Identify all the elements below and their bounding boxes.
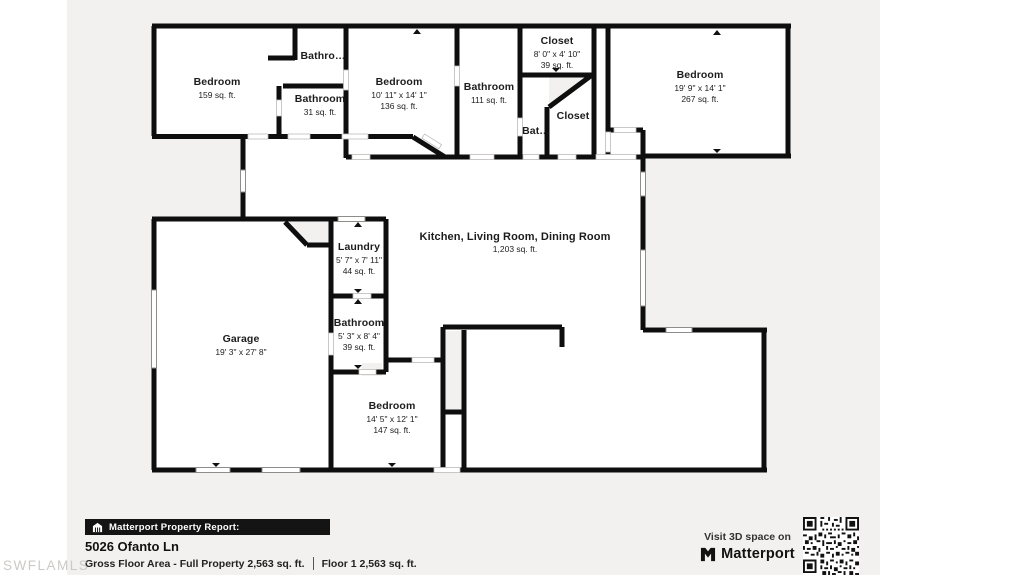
room-name: Bathroom [295,93,345,107]
room-area: 44 sq. ft. [336,266,382,277]
room-label-bathroom-truncated: Bat… [522,125,550,139]
room-area: 39 sq. ft. [334,342,384,353]
room-label-closet-2: Closet [557,110,590,124]
room-area: 39 sq. ft. [534,60,581,71]
room-name: Bathroom [464,81,514,95]
room-label-closet-39: Closet 8' 0" x 4' 10" 39 sq. ft. [534,35,581,71]
room-label-bedroom-1: Bedroom 159 sq. ft. [194,76,241,101]
room-area: 147 sq. ft. [366,425,417,436]
room-name: Bedroom [371,76,426,90]
gross-floor-area: Gross Floor Area - Full Property 2,563 s… [85,558,305,570]
report-title: Matterport Property Report: [109,522,240,533]
matterport-logo-icon [700,547,716,562]
room-area: 159 sq. ft. [194,90,241,101]
room-area: 1,203 sq. ft. [420,244,611,255]
room-label-bedroom-147: Bedroom 14' 5" x 12' 1" 147 sq. ft. [366,400,417,436]
room-label-bedroom-136: Bedroom 10' 11" x 14' 1" 136 sq. ft. [371,76,426,112]
room-label-bathroom-small: Bathro… [300,50,345,64]
floor1-area: Floor 1 2,563 sq. ft. [322,558,417,570]
room-area: 136 sq. ft. [371,101,426,112]
room-name: Bedroom [194,76,241,90]
floor-area-stats: Gross Floor Area - Full Property 2,563 s… [85,557,417,570]
room-label-kitchen-living-dining: Kitchen, Living Room, Dining Room 1,203 … [420,230,611,255]
room-name: Bat… [522,125,550,139]
mls-watermark: SWFLAMLS [3,558,89,573]
room-name: Kitchen, Living Room, Dining Room [420,230,611,244]
room-label-bathroom-39: Bathroom 5' 3" x 8' 4" 39 sq. ft. [334,317,384,353]
qr-code [803,517,859,575]
room-area: 267 sq. ft. [674,94,725,105]
room-name: Bedroom [366,400,417,414]
room-name: Bedroom [674,69,725,83]
room-dims: 5' 3" x 8' 4" [334,331,384,342]
room-label-bathroom-31: Bathroom 31 sq. ft. [295,93,345,118]
room-area: 111 sq. ft. [464,95,514,106]
room-label-bedroom-267: Bedroom 19' 9" x 14' 1" 267 sq. ft. [674,69,725,105]
room-name: Bathro… [300,50,345,64]
room-label-garage: Garage 19' 3" x 27' 8" [215,333,266,358]
room-label-laundry: Laundry 5' 7" x 7' 11" 44 sq. ft. [336,241,382,277]
room-dims: 19' 3" x 27' 8" [215,347,266,358]
floorplan-image: Bedroom 159 sq. ft. Bathro… Bathroom 31 … [0,0,1024,575]
room-name: Closet [534,35,581,49]
room-dims: 8' 0" x 4' 10" [534,49,581,60]
room-name: Bathroom [334,317,384,331]
room-dims: 10' 11" x 14' 1" [371,90,426,101]
visit-3d-text: Visit 3D space on [690,531,805,543]
matterport-brand-text: Matterport [721,546,795,562]
room-area: 31 sq. ft. [295,107,345,118]
room-label-bathroom-111: Bathroom 111 sq. ft. [464,81,514,106]
stats-divider [313,557,314,570]
report-house-icon [92,522,103,533]
room-name: Laundry [336,241,382,255]
room-dims: 19' 9" x 14' 1" [674,83,725,94]
room-name: Closet [557,110,590,124]
room-dims: 5' 7" x 7' 11" [336,255,382,266]
visit-3d-block: Visit 3D space on Matterport [690,531,805,562]
report-title-bar: Matterport Property Report: [85,519,330,535]
room-name: Garage [215,333,266,347]
property-address: 5026 Ofanto Ln [85,539,179,554]
room-dims: 14' 5" x 12' 1" [366,414,417,425]
